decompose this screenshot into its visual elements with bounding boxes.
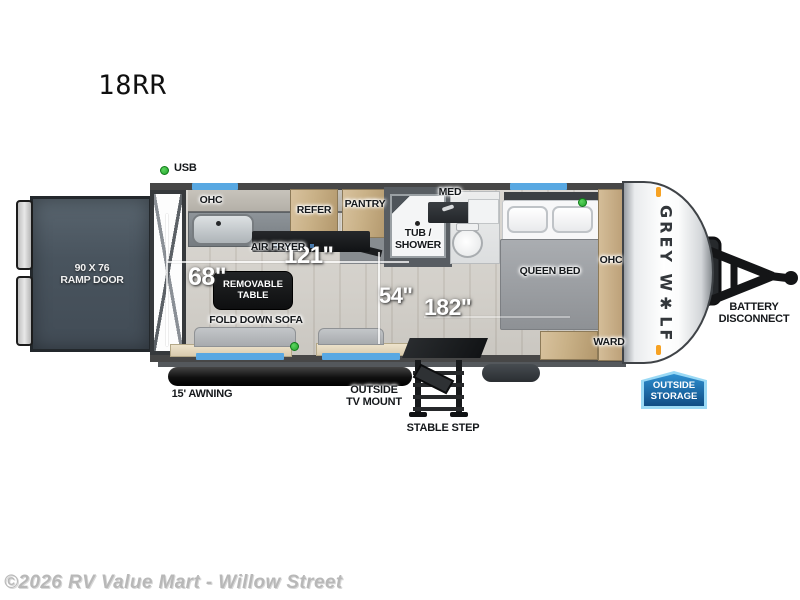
toilet-tank — [456, 223, 479, 231]
floorplan-diagram: 18RR USB 90 X 76 RAMP DOOR OHC AIR FRYER… — [0, 0, 800, 600]
clearance-light-icon — [656, 345, 661, 355]
underside-tank — [482, 364, 540, 382]
dim-line-68 — [166, 214, 168, 346]
pillow — [552, 206, 593, 233]
queen-bed-label: QUEEN BED — [504, 266, 596, 278]
bedroom-ohc-label: OHC — [592, 255, 630, 267]
ramp-door-rail — [16, 276, 33, 346]
watermark: ©2026 RV Value Mart - Willow Street — [4, 572, 343, 594]
usb-label: USB — [174, 162, 204, 174]
window-strip — [510, 183, 567, 190]
measurement-68: 68" — [188, 263, 226, 292]
ramp-door-label: 90 X 76 RAMP DOOR — [40, 263, 144, 287]
stable-step — [406, 360, 476, 422]
entry-door — [402, 338, 488, 358]
stable-step-label: STABLE STEP — [402, 422, 484, 434]
window-strip — [196, 353, 284, 360]
sofa-cushion-right — [318, 328, 384, 345]
brand-logo: GREY W✱LF — [654, 204, 678, 344]
window-strip — [322, 353, 400, 360]
usb-dot-bedroom — [578, 198, 587, 207]
tub-shower-label: TUB / SHOWER — [386, 228, 450, 252]
outside-storage-label: OUTSIDE STORAGE — [651, 381, 698, 406]
tub-drain-icon — [415, 221, 420, 226]
usb-dot-sofa — [290, 342, 299, 351]
page-title: 18RR — [98, 70, 167, 101]
sink-drain-icon — [216, 221, 221, 226]
ramp-door-rail — [16, 200, 33, 270]
refer-label: REFER — [290, 205, 338, 217]
awning-label: 15' AWNING — [164, 388, 240, 400]
outside-storage-badge-inner: OUTSIDE STORAGE — [644, 374, 704, 406]
kitchen-ohc-label: OHC — [194, 195, 228, 207]
window-strip — [192, 183, 238, 190]
vanity-counter — [468, 199, 499, 224]
measurement-54: 54" — [379, 283, 412, 309]
pantry-label: PANTRY — [340, 199, 390, 211]
removable-table-label: REMOVABLE TABLE — [223, 280, 283, 302]
usb-indicator-icon — [160, 166, 169, 175]
clearance-light-icon — [656, 187, 661, 197]
sofa-cushion-left — [194, 327, 296, 347]
pillow — [507, 206, 548, 233]
outside-storage-badge: OUTSIDE STORAGE — [641, 371, 707, 409]
measurement-182: 182" — [424, 294, 471, 321]
med-cabinet-label: MED — [428, 187, 472, 199]
toilet — [452, 228, 483, 258]
kitchen-sink — [192, 214, 254, 245]
air-fryer-label: AIR FRYER — [246, 242, 310, 254]
battery-disconnect-label: BATTERY DISCONNECT — [708, 301, 800, 326]
ward-label: WARD — [586, 337, 632, 349]
fold-down-sofa-label: FOLD DOWN SOFA — [208, 315, 304, 327]
tv-mount-label: OUTSIDE TV MOUNT — [340, 384, 408, 409]
rear-opening — [150, 190, 186, 355]
